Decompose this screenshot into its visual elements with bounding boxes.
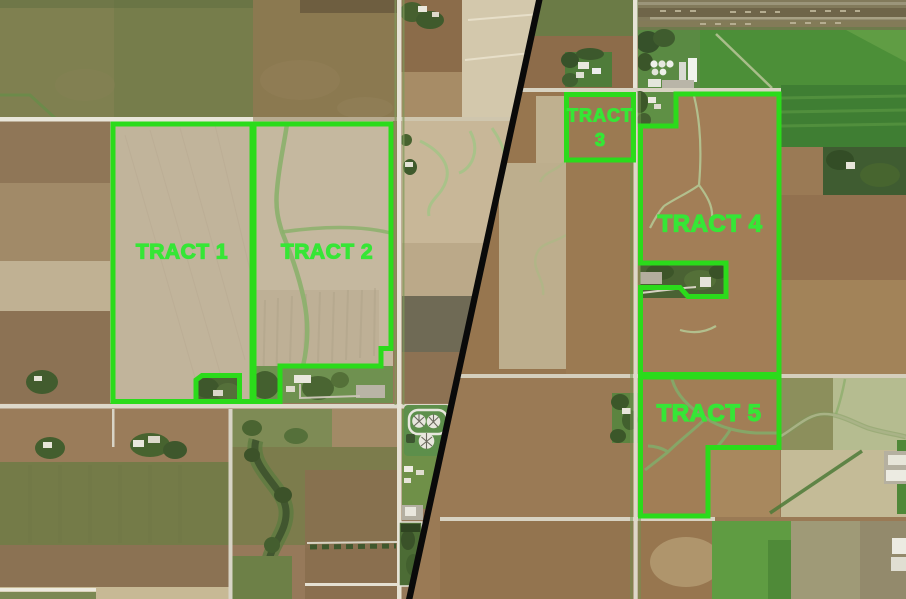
svg-text:TRACT 5: TRACT 5 <box>657 400 762 427</box>
svg-text:TRACT 1: TRACT 1 <box>136 241 228 264</box>
svg-text:TRACT: TRACT <box>567 106 633 126</box>
svg-text:TRACT 2: TRACT 2 <box>281 241 373 264</box>
svg-text:3: 3 <box>595 130 605 150</box>
svg-text:TRACT 4: TRACT 4 <box>658 211 763 238</box>
